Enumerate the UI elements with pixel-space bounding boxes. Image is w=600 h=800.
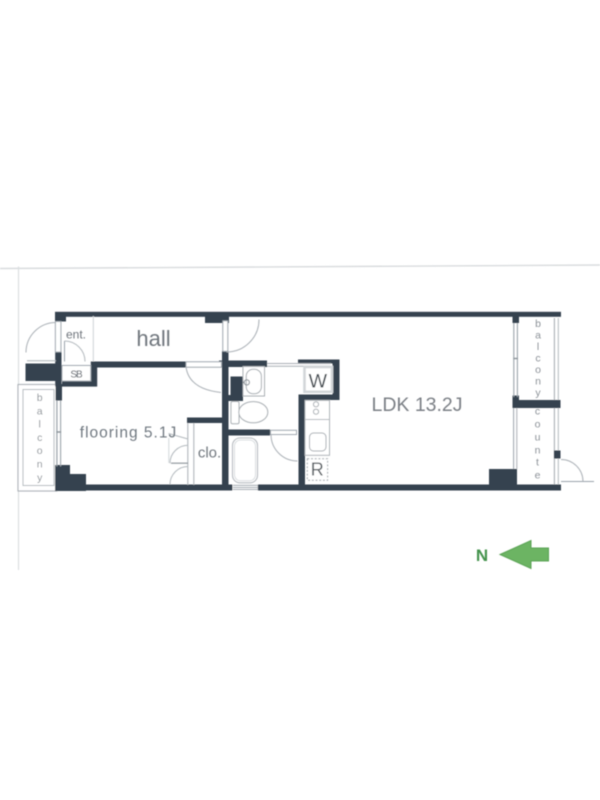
svg-text:y: y — [535, 387, 541, 399]
svg-text:LDK 13.2J: LDK 13.2J — [371, 394, 462, 416]
svg-text:b: b — [37, 392, 43, 404]
svg-text:e: e — [535, 470, 541, 482]
svg-text:o: o — [37, 445, 43, 457]
svg-text:SB: SB — [70, 370, 83, 381]
svg-text:a: a — [535, 330, 541, 342]
svg-text:R: R — [311, 459, 324, 479]
svg-text:N: N — [476, 546, 488, 565]
svg-text:t: t — [536, 457, 539, 469]
svg-text:ent.: ent. — [66, 327, 86, 341]
svg-text:W: W — [309, 370, 328, 392]
svg-text:hall: hall — [136, 326, 170, 351]
svg-text:c: c — [535, 353, 540, 365]
svg-text:o: o — [535, 419, 541, 431]
svg-text:flooring 5.1J: flooring 5.1J — [80, 425, 177, 442]
svg-text:clo.: clo. — [198, 445, 221, 462]
svg-text:n: n — [37, 459, 43, 471]
svg-text:n: n — [535, 376, 541, 388]
svg-text:c: c — [37, 432, 42, 444]
svg-text:b: b — [535, 318, 541, 330]
svg-text:l: l — [39, 419, 41, 431]
svg-text:n: n — [535, 445, 541, 457]
svg-text:y: y — [37, 472, 43, 484]
svg-text:u: u — [535, 432, 541, 444]
svg-text:o: o — [535, 364, 541, 376]
svg-text:l: l — [537, 341, 539, 353]
svg-text:a: a — [37, 405, 43, 417]
